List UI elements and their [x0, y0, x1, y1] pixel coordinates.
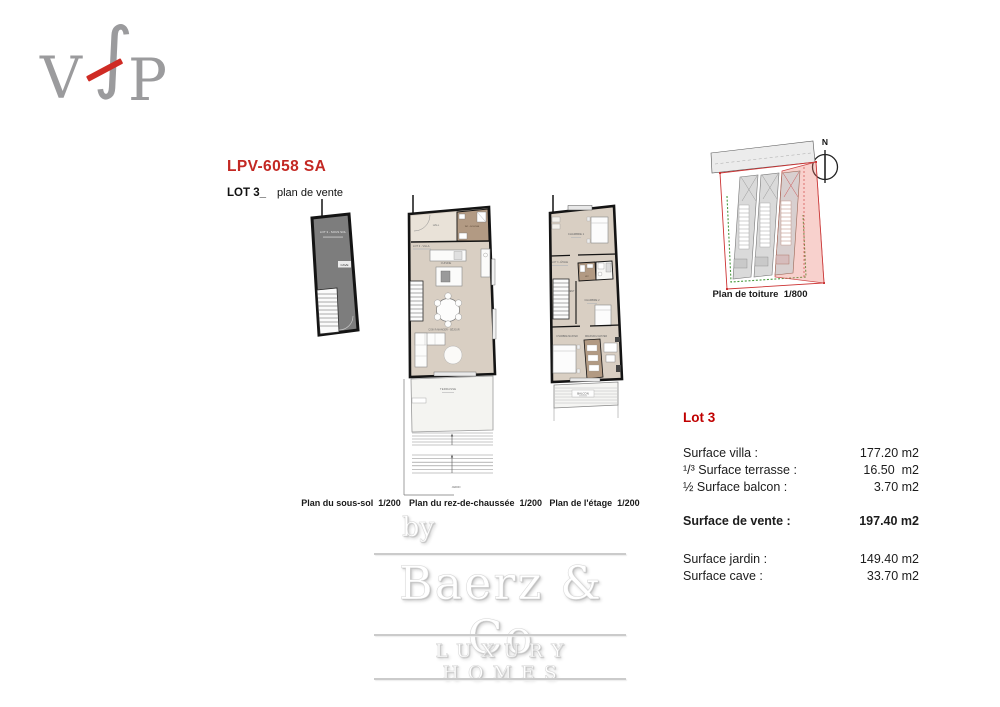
- illegible-text-line: [571, 237, 581, 238]
- surface-row-jardin: Surface jardin : 149.40 m2: [683, 551, 919, 568]
- illegible-text-line: [413, 249, 431, 250]
- vfp-logo: V ∫ P: [40, 22, 190, 127]
- etage-chambre1-label: CHAMBRE 1: [568, 232, 585, 236]
- surface-label: Surface cave :: [683, 568, 763, 585]
- rdc-staircase: [410, 281, 423, 321]
- page: V ∫ P LPV-6058 SA LOT 3_plan de vente LO…: [0, 0, 1000, 707]
- etage-bathroom-small: [596, 261, 613, 280]
- caption-sous-sol: Plan du sous-sol 1/200: [292, 498, 410, 508]
- watermark-rule: [374, 678, 626, 680]
- surface-value: 33.70 m2: [867, 568, 919, 585]
- floor-plan-sous-sol: LOT 3 - SOUS SOL CAVE: [300, 198, 370, 343]
- lot-heading: LOT 3_: [227, 187, 266, 199]
- surfaces-title: Lot 3: [683, 410, 919, 425]
- window: [492, 259, 496, 285]
- garden-steps: [412, 433, 493, 473]
- illegible-text-line: [323, 237, 343, 238]
- surface-label: Surface villa :: [683, 445, 758, 462]
- surface-row-cave: Surface cave : 33.70 m2: [683, 568, 919, 585]
- watermark-rule: [374, 634, 626, 636]
- surface-value: 149.40 m2: [860, 551, 919, 568]
- surface-value: 197.40 m2: [859, 513, 919, 530]
- sliding-door: [570, 378, 600, 382]
- vfp-letter-p: P: [128, 46, 167, 114]
- surface-label: Surface jardin :: [683, 551, 767, 568]
- rdc-terrasse-label: TERRASSE: [440, 387, 456, 391]
- caption-toiture: Plan de toiture 1/800: [690, 289, 830, 300]
- rdc-jardin-label: JARDIN: [452, 486, 461, 489]
- surface-row-vente: Surface de vente : 197.40 m2: [683, 513, 919, 530]
- building-1: [733, 175, 758, 279]
- vfp-letter-v: V: [40, 44, 82, 112]
- baerz-watermark: by Baerz & Co LUXURY HOMES: [368, 512, 634, 692]
- caption-rez-de-chaussee: Plan du rez-de-chaussée 1/200: [403, 498, 548, 508]
- etage-lot-label: LOT 3 - ÉTAGE: [552, 261, 568, 264]
- soussol-staircase: [317, 288, 339, 334]
- rdc-lot-label: LOT 3 - VILLA: [413, 244, 430, 248]
- etage-balcon-label: BALCON: [577, 392, 589, 396]
- rdc-cuisine-label: CUISINE: [441, 261, 452, 265]
- rdc-wc-label: WC - DOUCHE: [465, 226, 480, 228]
- etage-chambre2-label: CHAMBRE 2: [584, 298, 600, 302]
- surface-label: ½ Surface balcon :: [683, 479, 787, 496]
- rdc-sejour-label: COIN À MANGER - SÉJOUR: [428, 329, 459, 332]
- illegible-text-line: [552, 265, 568, 266]
- watermark-by: by: [402, 512, 435, 543]
- etage-staircase: [553, 279, 569, 319]
- reference-title: LPV-6058 SA: [227, 158, 326, 176]
- watermark-rule: [374, 553, 626, 555]
- window: [568, 206, 592, 211]
- soussol-cave-label: CAVE: [341, 263, 349, 267]
- rdc-terrace: [411, 376, 493, 432]
- sliding-door: [434, 372, 476, 376]
- etage-dressing: [584, 339, 603, 379]
- surface-label: ¹/³ Surface terrasse :: [683, 462, 797, 479]
- floor-plan-etage: CHAMBRE 1 LOT 3 - ÉTAGE WC DÉGAGEMENT CH…: [540, 193, 632, 513]
- svg-text:N: N: [822, 137, 828, 147]
- surface-value: 177.20 m2: [860, 445, 919, 462]
- etage-dressing-label: DRESSING MASTER: [585, 335, 608, 338]
- roof-site-plan: N: [703, 131, 850, 306]
- rdc-hall-label: HALL: [433, 223, 440, 227]
- etage-master-label: CHAMBRE MASTER: [556, 335, 578, 338]
- building-2: [754, 173, 779, 277]
- surfaces-panel: Lot 3 Surface villa : 177.20 m2 ¹/³ Surf…: [683, 410, 919, 585]
- etage-master-bed: [553, 345, 580, 373]
- surface-value: 3.70 m2: [874, 479, 919, 496]
- etage-wc: [578, 262, 596, 281]
- surface-row-villa: Surface villa : 177.20 m2: [683, 445, 919, 462]
- window: [493, 309, 497, 339]
- illegible-text-line: [587, 303, 597, 304]
- surface-row-terrasse: ¹/³ Surface terrasse : 16.50 m2: [683, 462, 919, 479]
- caption-etage: Plan de l'étage 1/200: [547, 498, 642, 508]
- surface-row-balcon: ½ Surface balcon : 3.70 m2: [683, 479, 919, 496]
- floor-plan-rez-de-chaussee: HALL WC - DOUCHE LOT 3 - VILLA CUISINE C…: [396, 193, 502, 508]
- surface-value: 16.50 m2: [863, 462, 919, 479]
- soussol-lot-label: LOT 3 - SOUS SOL: [320, 230, 347, 234]
- etage-wc-label: WC: [585, 276, 589, 278]
- etage-chambre2-bed: [595, 305, 611, 326]
- surface-label: Surface de vente :: [683, 513, 791, 530]
